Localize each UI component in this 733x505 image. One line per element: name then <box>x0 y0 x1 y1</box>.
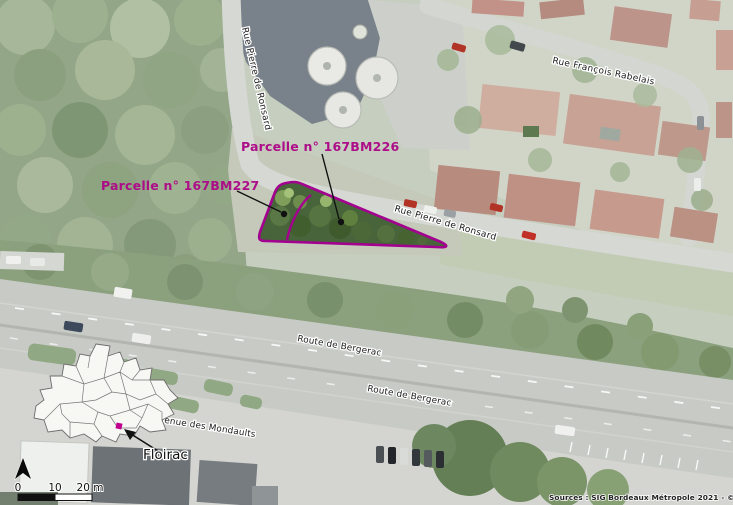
location-marker-icon <box>115 422 122 429</box>
tank-center <box>373 74 381 82</box>
scale-bar-white-segment <box>55 494 92 501</box>
parcel-227-dot <box>281 211 287 217</box>
tank-center <box>323 62 331 70</box>
scale-bar-black-segment <box>18 494 55 501</box>
small-building <box>252 486 278 505</box>
parcel-226-label: Parcelle n° 167BM226 <box>241 139 399 154</box>
small-tank-icon <box>353 25 367 39</box>
scale-tick-20: 20 m <box>77 482 104 494</box>
tank-center <box>339 106 347 114</box>
parcel-227-label: Parcelle n° 167BM227 <box>101 178 259 193</box>
scale-tick-0: 0 <box>15 482 22 494</box>
aerial-map-canvas: Rue Pierre de Ronsard Rue François Rabel… <box>0 0 733 505</box>
parcel-226-dot <box>338 219 344 225</box>
dark-roof-building <box>197 460 258 505</box>
sources-credit: Sources : SIG Bordeaux Métropole 2021 - … <box>549 493 733 502</box>
scale-tick-10: 10 <box>48 482 61 494</box>
floirac-label: Floirac <box>143 447 188 463</box>
map-figure: Rue Pierre de Ronsard Rue François Rabel… <box>0 0 733 505</box>
